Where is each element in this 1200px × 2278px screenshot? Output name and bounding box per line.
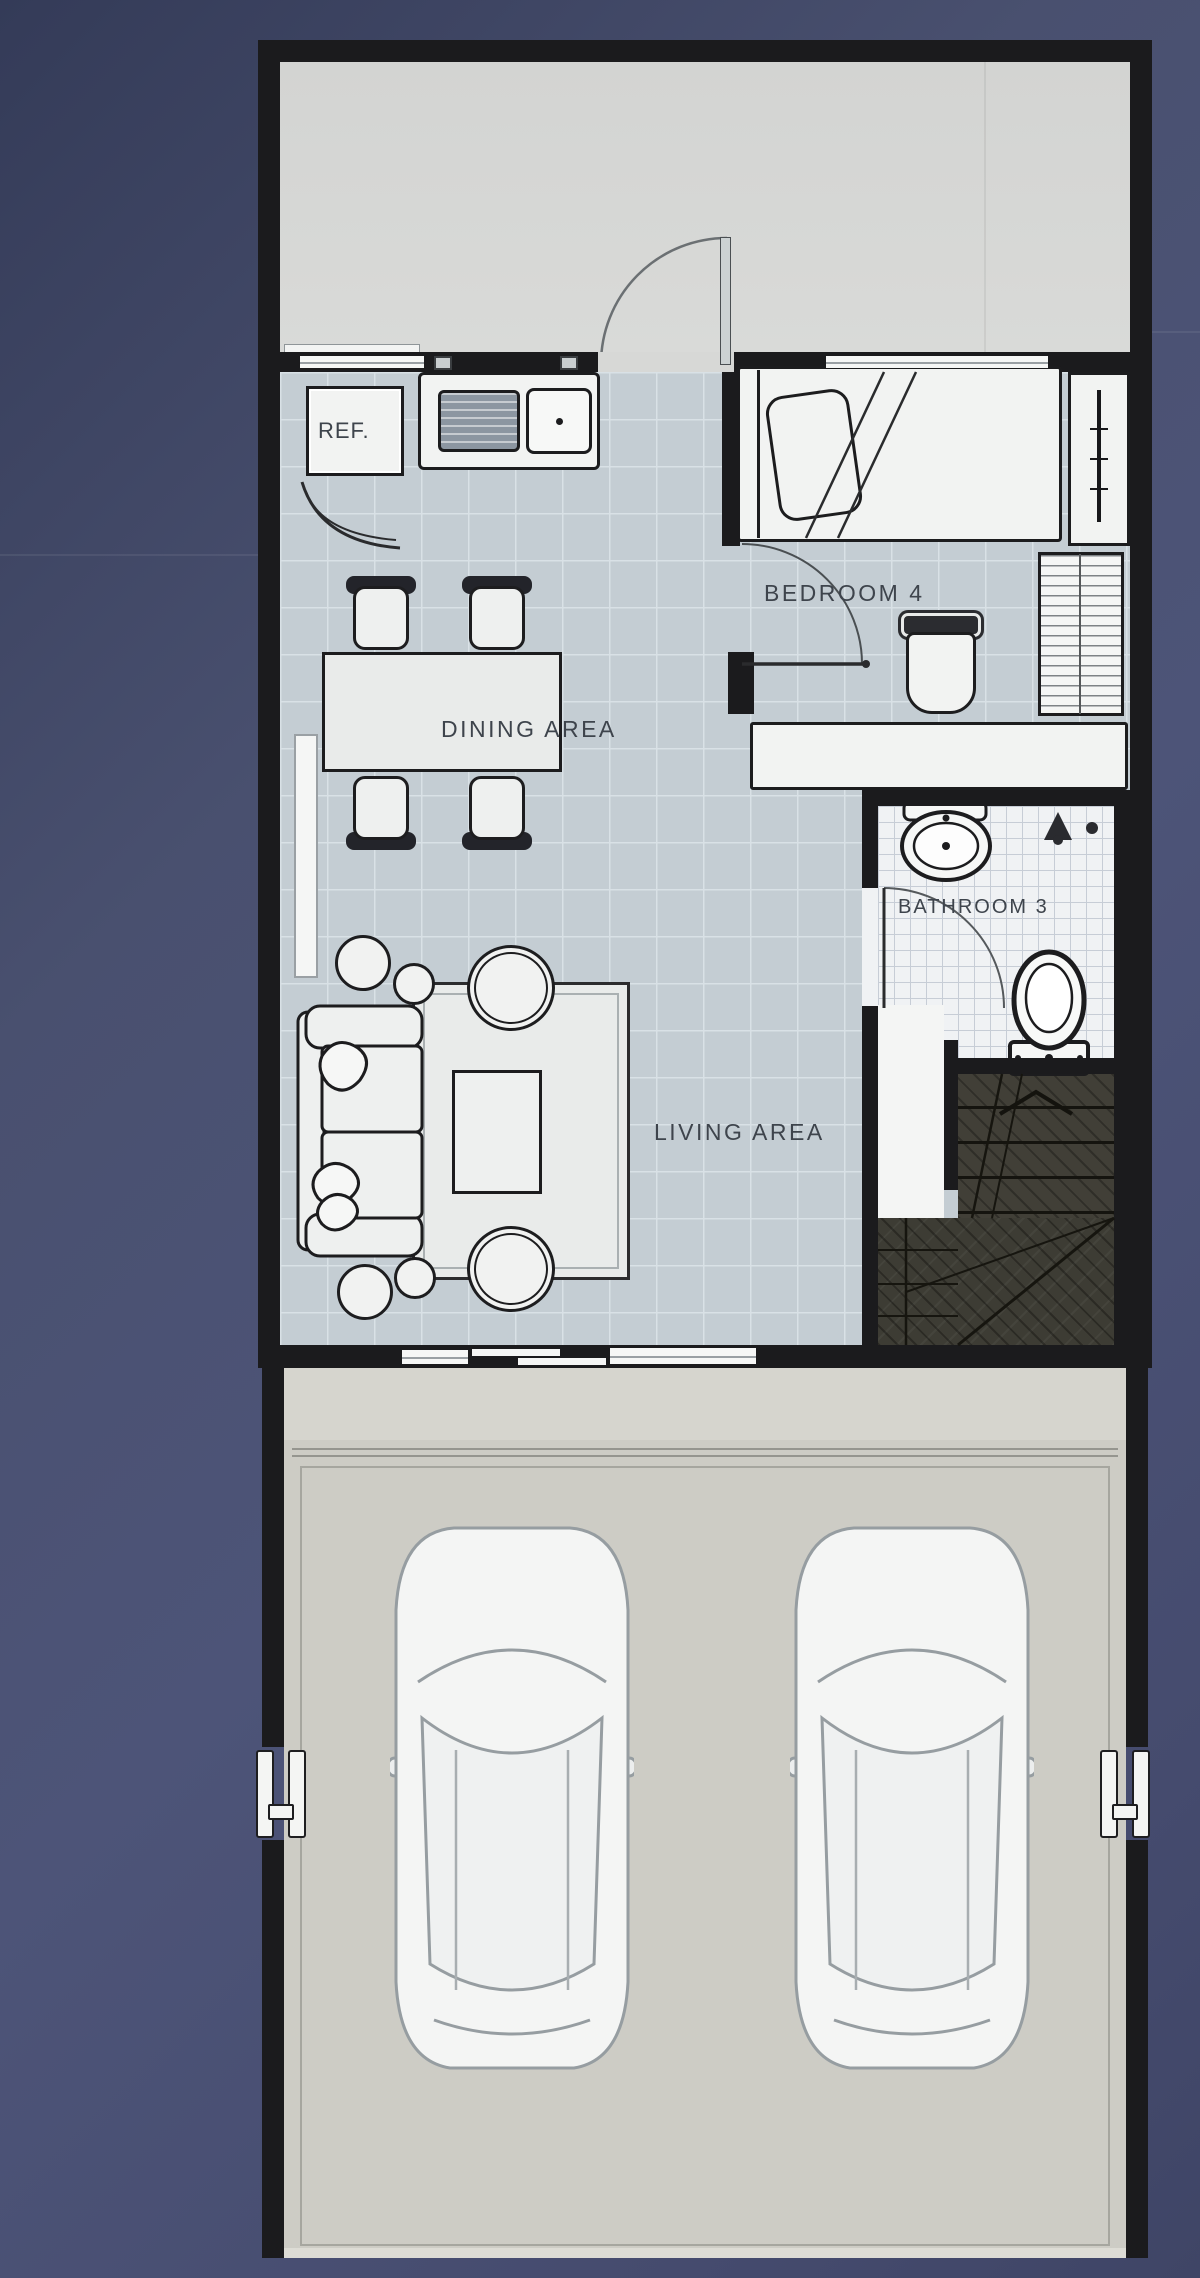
frame-top-wall: [258, 40, 1152, 62]
kitchen-window: [300, 356, 424, 368]
bedroom-partition-wall: [722, 372, 740, 546]
shower-head-icon: [1042, 810, 1102, 846]
garage-right-wall-lower: [1126, 1840, 1148, 2258]
closet-rod: [1097, 390, 1101, 522]
closet-hanger-tick3: [1090, 488, 1108, 490]
sink-drain-dot: [556, 418, 563, 425]
closet-hanger-tick2: [1090, 458, 1108, 460]
coffee-table: [452, 1070, 542, 1194]
stairs-winders: [878, 1218, 1114, 1345]
bedroom-door-hinge-block: [728, 652, 754, 714]
dining-area-label: DINING AREA: [441, 716, 617, 743]
left-wall-window: [294, 734, 318, 978]
bed-pillow: [764, 387, 865, 523]
bathroom-door-opening: [862, 888, 878, 1006]
bathroom-sink: [896, 800, 1000, 884]
desk: [750, 722, 1128, 790]
faucet-knob-1: [434, 356, 452, 370]
bed-headboard-line: [757, 370, 760, 538]
bathroom-top-wall: [862, 790, 1132, 806]
stairs-upper-flight: [958, 1074, 1114, 1218]
patio-seam: [984, 62, 986, 352]
garage-left-wall-lower: [262, 1840, 284, 2258]
car-left: [390, 1520, 634, 2076]
stair-corridor: [878, 1005, 944, 1218]
dining-chair-top-right: [466, 578, 528, 652]
faucet-knob-2: [560, 356, 578, 370]
gate-hinge-left-bar1: [256, 1750, 274, 1838]
hall-wall-vertical: [862, 790, 878, 1345]
stool-top-corner: [335, 935, 391, 991]
dining-chair-bottom-right: [466, 774, 528, 848]
dining-chair-top-left: [350, 578, 412, 652]
gate-hinge-right-cross: [1112, 1804, 1138, 1820]
desk-chair-seat: [906, 632, 976, 714]
driveway-edge: [284, 2248, 1126, 2258]
garage-wall-window-right: [610, 1348, 756, 1364]
sliding-door-leaf-a: [472, 1349, 560, 1356]
bedroom-label: BEDROOM 4: [764, 580, 925, 607]
garage-right-wall-upper: [1126, 1368, 1148, 1747]
closet-hanger-tick1: [1090, 428, 1108, 430]
gate-hinge-left-bar2: [288, 1750, 306, 1838]
background-seam-left: [0, 554, 258, 556]
entry-door-opening: [598, 352, 734, 372]
stool-bottom-corner: [337, 1264, 393, 1320]
entry-door-leaf: [720, 237, 731, 365]
floorplan-photo: REF. DINING AREA BEDROOM 4: [0, 0, 1200, 2278]
stair-wall-stub: [944, 1040, 958, 1190]
gate-hinge-right-bar1: [1100, 1750, 1118, 1838]
sofa: [296, 1004, 428, 1258]
background-seam-right: [1152, 331, 1200, 333]
bathroom-bottom-wall: [944, 1058, 1132, 1074]
sink-basin-left: [438, 390, 520, 452]
shelf-closet-divider: [1079, 554, 1081, 714]
garage-apron-line1: [292, 1448, 1118, 1450]
frame-left-wall: [258, 40, 280, 1368]
sliding-door-leaf-b: [518, 1358, 606, 1365]
entry-patio-floor: [280, 62, 1130, 354]
desk-chair: [898, 610, 984, 716]
dining-table: [322, 652, 562, 772]
refrigerator-label: REF.: [318, 418, 370, 444]
garage-wall-window-left: [402, 1350, 468, 1364]
stool-bottom-small: [394, 1257, 436, 1299]
garage-apron: [284, 1368, 1126, 1440]
garage-apron-line2: [292, 1455, 1118, 1457]
living-area-label: LIVING AREA: [654, 1119, 825, 1146]
bedroom-window: [826, 356, 1048, 368]
dining-chair-bottom-left: [350, 774, 412, 848]
shelf-closet: [1038, 552, 1124, 716]
gate-hinge-right-bar2: [1132, 1750, 1150, 1838]
bathroom-label: BATHROOM 3: [898, 896, 1049, 919]
frame-right-wall: [1130, 40, 1152, 1368]
lounge-chair-bottom: [467, 1226, 555, 1312]
car-right: [790, 1520, 1034, 2076]
garage-left-wall-upper: [262, 1368, 284, 1747]
gate-hinge-left-cross: [268, 1804, 294, 1820]
stool-top-small: [393, 963, 435, 1005]
lounge-chair-top: [467, 945, 555, 1031]
